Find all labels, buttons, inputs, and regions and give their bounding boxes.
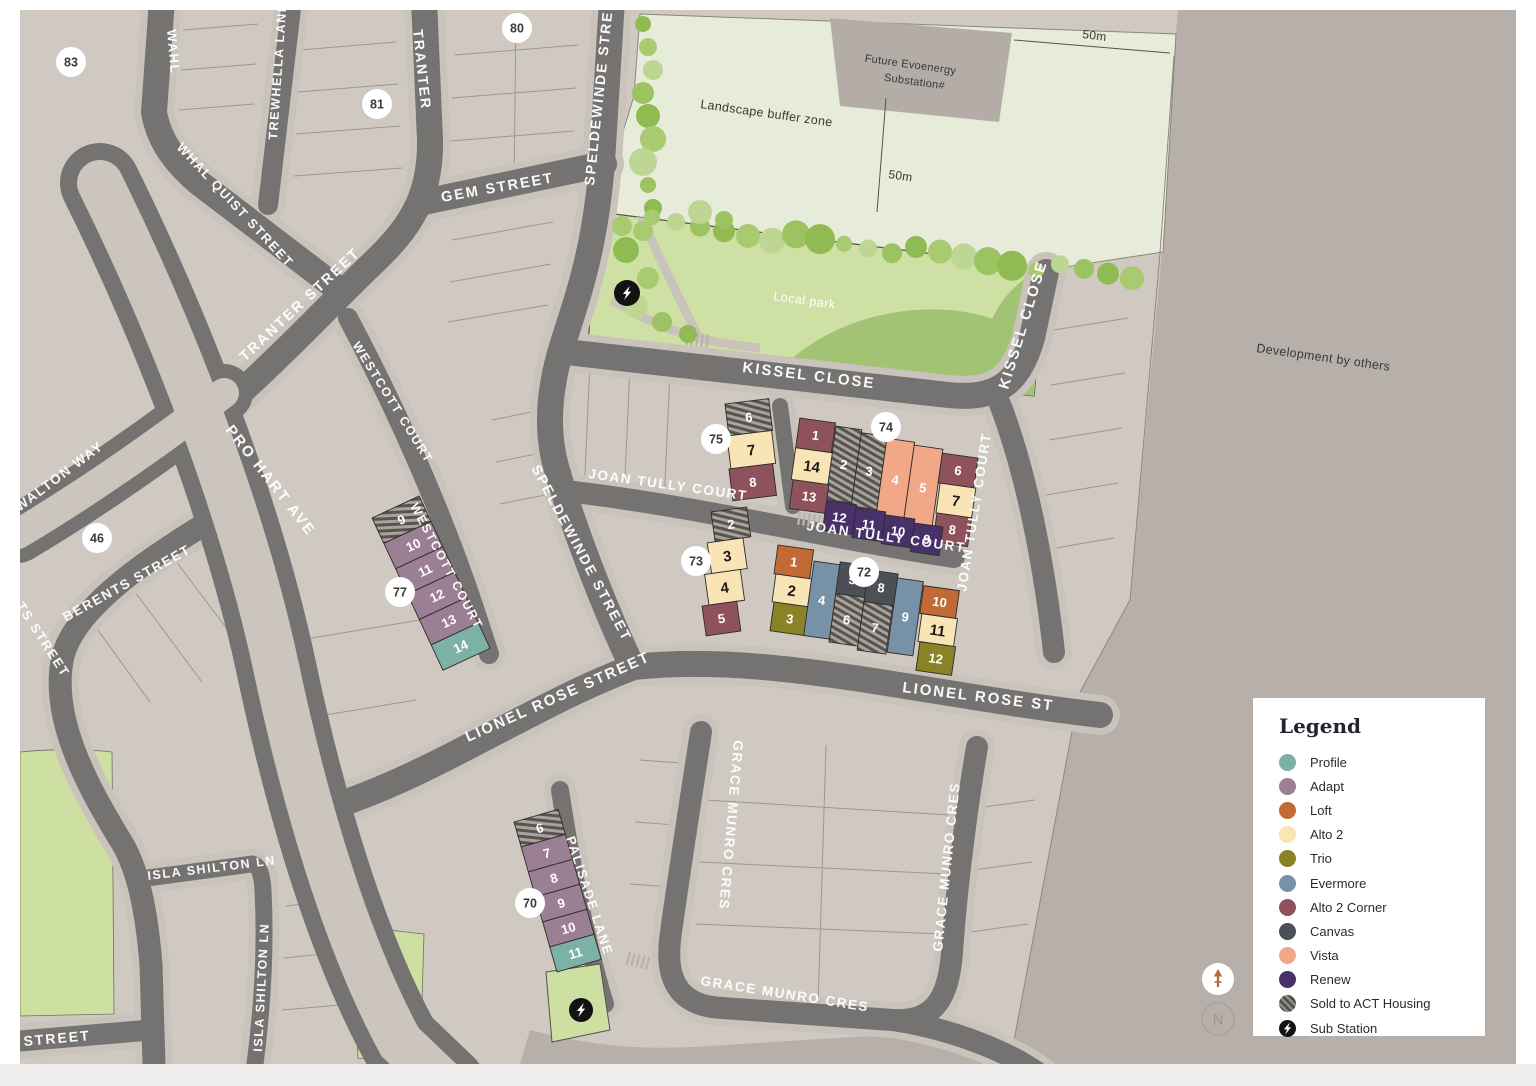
stage-badge-number: 75 — [709, 433, 723, 447]
legend-label-act: Sold to ACT Housing — [1310, 996, 1430, 1011]
stage-badge-number: 74 — [879, 421, 893, 435]
tree — [640, 177, 656, 193]
stage-badge-80[interactable]: 80 — [502, 13, 532, 43]
tree — [679, 325, 697, 343]
tree — [667, 213, 685, 231]
tree — [612, 216, 632, 236]
border-right — [1516, 0, 1536, 1064]
legend-swatch-trio — [1279, 850, 1296, 867]
tree — [715, 211, 733, 229]
substation-icon — [614, 280, 640, 306]
label-50m-top: 50m — [1082, 27, 1108, 44]
legend-item-evermore: Evermore — [1279, 871, 1485, 895]
legend-item-loft: Loft — [1279, 798, 1485, 822]
legend-item-trio: Trio — [1279, 847, 1485, 871]
legend-swatch-alto2corner — [1279, 899, 1296, 916]
border-left — [0, 0, 20, 1064]
legend-swatch-adapt — [1279, 778, 1296, 795]
stage-badge-75[interactable]: 75 — [701, 424, 731, 454]
legend-item-profile: Profile — [1279, 750, 1485, 774]
tree — [759, 228, 785, 254]
legend-items: ProfileAdaptLoftAlto 2TrioEvermoreAlto 2… — [1279, 750, 1485, 1040]
north-arrow — [1202, 963, 1234, 995]
substation-icon — [569, 998, 593, 1022]
lot-number-c72-12: 12 — [928, 650, 944, 667]
tree — [632, 82, 654, 104]
legend-swatch-canvas — [1279, 923, 1296, 940]
tree — [613, 237, 639, 263]
legend-label-loft: Loft — [1310, 803, 1332, 818]
tree — [652, 312, 672, 332]
legend-label-vista: Vista — [1310, 948, 1339, 963]
legend-label-adapt: Adapt — [1310, 779, 1344, 794]
legend-swatch-alto2 — [1279, 826, 1296, 843]
tree — [905, 236, 927, 258]
stage-badge-number: 72 — [857, 566, 871, 580]
legend-swatch-substation — [1279, 1020, 1296, 1037]
parking-bay-line — [706, 334, 708, 347]
stage-badge-77[interactable]: 77 — [385, 577, 415, 607]
tree — [997, 251, 1027, 281]
tree — [1051, 255, 1069, 273]
tree — [637, 267, 659, 289]
stage-badge-46[interactable]: 46 — [82, 523, 112, 553]
stage-badge-number: 83 — [64, 56, 78, 70]
tree — [736, 224, 760, 248]
tree — [1074, 259, 1094, 279]
legend-item-alto2corner: Alto 2 Corner — [1279, 895, 1485, 919]
legend-item-vista: Vista — [1279, 944, 1485, 968]
legend-swatch-renew — [1279, 971, 1296, 988]
stage-badge-number: 77 — [393, 586, 407, 600]
tree — [636, 104, 660, 128]
legend-label-evermore: Evermore — [1310, 876, 1366, 891]
legend-swatch-loft — [1279, 802, 1296, 819]
tree — [805, 224, 835, 254]
legend-item-alto2: Alto 2 — [1279, 823, 1485, 847]
tree — [639, 38, 657, 56]
lightning-icon — [1282, 1022, 1293, 1035]
lot-number-c74-14: 14 — [802, 458, 822, 477]
stage-badge-number: 73 — [689, 555, 703, 569]
stage-badge-70[interactable]: 70 — [515, 888, 545, 918]
tree — [629, 148, 657, 176]
legend-label-trio: Trio — [1310, 851, 1332, 866]
legend-item-canvas: Canvas — [1279, 919, 1485, 943]
tree — [928, 240, 952, 264]
stage-badge-72[interactable]: 72 — [849, 557, 879, 587]
tree — [882, 243, 902, 263]
legend-label-alto2corner: Alto 2 Corner — [1310, 900, 1387, 915]
tree — [635, 16, 651, 32]
legend-swatch-profile — [1279, 754, 1296, 771]
legend-panel: Legend ProfileAdaptLoftAlto 2TrioEvermor… — [1253, 698, 1485, 1036]
tree — [951, 243, 977, 269]
legend-item-substation: Sub Station — [1279, 1016, 1485, 1040]
tree — [1097, 263, 1119, 285]
parking-bay-line — [701, 334, 703, 347]
tree — [859, 240, 877, 258]
lot-number-c72-11: 11 — [929, 622, 947, 641]
tree — [1120, 266, 1144, 290]
border-top — [0, 0, 1536, 10]
compass-n-letter: N — [1213, 1012, 1224, 1029]
legend-label-canvas: Canvas — [1310, 924, 1354, 939]
tree — [836, 236, 852, 252]
legend-label-alto2: Alto 2 — [1310, 827, 1343, 842]
stage-badge-number: 70 — [523, 897, 537, 911]
legend-label-renew: Renew — [1310, 972, 1350, 987]
stage-badge-number: 80 — [510, 22, 524, 36]
legend-swatch-act — [1279, 995, 1296, 1012]
tree — [643, 60, 663, 80]
stage-badge-83[interactable]: 83 — [56, 47, 86, 77]
lot-number-c74-13: 13 — [801, 488, 817, 505]
stage-badge-74[interactable]: 74 — [871, 412, 901, 442]
legend-item-renew: Renew — [1279, 968, 1485, 992]
legend-item-act: Sold to ACT Housing — [1279, 992, 1485, 1016]
legend-item-adapt: Adapt — [1279, 774, 1485, 798]
tree — [644, 209, 660, 225]
border-bottom-strip — [0, 1064, 1536, 1086]
stage-badge-number: 46 — [90, 532, 104, 546]
stage-badge-73[interactable]: 73 — [681, 546, 711, 576]
legend-swatch-vista — [1279, 947, 1296, 964]
tree — [688, 200, 712, 224]
stage-badge-number: 81 — [370, 98, 384, 112]
legend-swatch-evermore — [1279, 875, 1296, 892]
stage-badge-81[interactable]: 81 — [362, 89, 392, 119]
lot-number-c72-10: 10 — [931, 594, 947, 611]
masterplan-page: 6781234567891011121314234512345678910111… — [0, 0, 1536, 1086]
legend-label-substation: Sub Station — [1310, 1021, 1377, 1036]
legend-label-profile: Profile — [1310, 755, 1347, 770]
legend-title: Legend — [1279, 714, 1485, 738]
